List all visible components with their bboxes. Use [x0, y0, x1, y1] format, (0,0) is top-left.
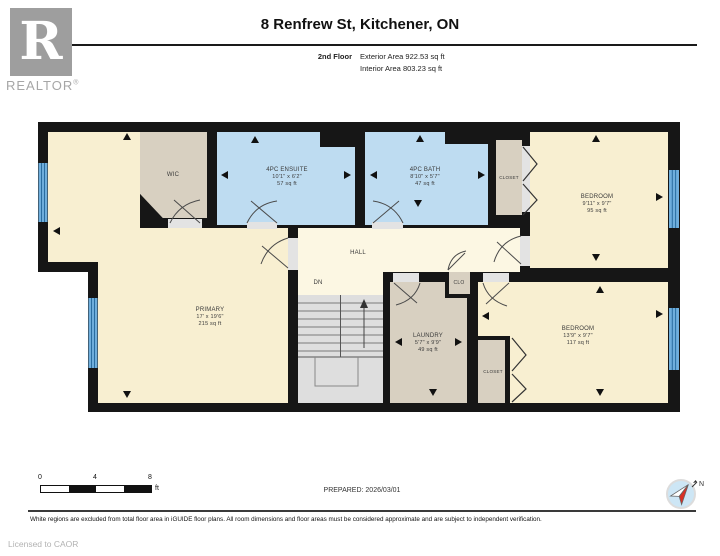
door-gap-bath	[372, 222, 403, 229]
exterior-area-text: Exterior Area 922.53 sq ft	[360, 52, 445, 61]
scale-unit-label: ft	[155, 485, 159, 492]
scale-tick-0: 0	[38, 474, 42, 481]
floor-label: 2nd Floor	[240, 52, 352, 61]
room-label-closet-bottom: CLOSET	[472, 368, 514, 375]
ensuite-dims: 10'1" x 6'2"	[252, 174, 322, 181]
room-primary-upper	[48, 132, 140, 228]
header-divider	[25, 44, 697, 46]
door-gap-primary	[288, 238, 298, 270]
room-label-ensuite: 4PC ENSUITE 10'1" x 6'2" 57 sq ft	[252, 167, 322, 188]
scale-bar	[40, 485, 152, 493]
bedroom2-name: BEDROOM	[543, 326, 613, 333]
bedroom2-dims: 13'9" x 9'7"	[543, 333, 613, 340]
realtor-brand-text: REALTOR	[6, 78, 73, 93]
registered-mark: ®	[73, 80, 79, 87]
room-primary-mid	[48, 228, 288, 262]
bath-wall-notch	[445, 132, 488, 144]
wic-name: WIC	[150, 172, 196, 179]
laundry-area: 49 sq ft	[393, 347, 463, 354]
bedroom1-name: BEDROOM	[562, 194, 632, 201]
bath-dims: 8'10" x 5'7"	[390, 174, 460, 181]
dn-text: DN	[306, 280, 330, 287]
footer-divider	[28, 510, 696, 512]
room-label-wic: WIC	[150, 172, 196, 179]
ensuite-name: 4PC ENSUITE	[252, 167, 322, 174]
room-hall	[298, 228, 520, 272]
room-label-bedroom2: BEDROOM 13'9" x 9'7" 117 sq ft	[543, 326, 613, 347]
door-gap-laundry	[393, 273, 419, 282]
bath-area: 47 sq ft	[390, 181, 460, 188]
compass-n-label: N	[699, 481, 704, 488]
hall-name: HALL	[338, 250, 378, 257]
realtor-logo-letter: R	[19, 11, 62, 73]
ensuite-area: 57 sq ft	[252, 181, 322, 188]
realtor-logo: R	[10, 8, 72, 76]
door-gap-ensuite	[247, 222, 277, 229]
prepared-date: PREPARED: 2026/03/01	[262, 487, 462, 494]
stairs-dn-label: DN	[306, 280, 330, 287]
primary-dims: 17' x 19'6"	[175, 314, 245, 321]
compass-icon: N	[664, 474, 708, 514]
primary-name: PRIMARY	[175, 307, 245, 314]
licensed-text: Licensed to CAOR	[8, 539, 78, 549]
scale-segment	[96, 486, 124, 492]
room-label-clo: CLO	[445, 280, 473, 287]
room-label-bath: 4PC BATH 8'10" x 5'7" 47 sq ft	[390, 167, 460, 188]
door-gap-bedroom2	[483, 273, 509, 282]
room-label-closet-top: CLOSET	[488, 174, 530, 181]
scale-segment	[124, 486, 152, 492]
primary-area: 215 sq ft	[175, 321, 245, 328]
scale-segment	[41, 486, 69, 492]
bath-name: 4PC BATH	[390, 167, 460, 174]
bedroom2-area: 117 sq ft	[543, 340, 613, 347]
closet-top-name: CLOSET	[488, 174, 530, 181]
room-label-laundry: LAUNDRY 5'7" x 9'9" 49 sq ft	[393, 333, 463, 354]
realtor-logo-text: REALTOR®	[6, 78, 96, 93]
closet-bottom-name: CLOSET	[472, 368, 514, 375]
ensuite-wall-notch	[320, 132, 355, 147]
scale-tick-4: 4	[93, 474, 97, 481]
door-gap-bedroom1	[520, 236, 530, 266]
disclaimer-text: White regions are excluded from total fl…	[30, 516, 690, 523]
laundry-dims: 5'7" x 9'9"	[393, 340, 463, 347]
room-primary-lower	[98, 262, 288, 403]
scale-segment	[69, 486, 97, 492]
room-stairwell	[298, 295, 383, 403]
interior-area-text: Interior Area 803.23 sq ft	[360, 64, 442, 73]
laundry-name: LAUNDRY	[393, 333, 463, 340]
room-label-primary: PRIMARY 17' x 19'6" 215 sq ft	[175, 307, 245, 328]
door-gap-wic	[168, 219, 202, 228]
bedroom1-dims: 9'11" x 9'7"	[562, 201, 632, 208]
clo-name: CLO	[445, 280, 473, 287]
room-label-hall: HALL	[338, 250, 378, 257]
page-title: 8 Renfrew St, Kitchener, ON	[0, 16, 720, 33]
room-label-bedroom1: BEDROOM 9'11" x 9'7" 95 sq ft	[562, 194, 632, 215]
bedroom1-area: 95 sq ft	[562, 208, 632, 215]
scale-tick-8: 8	[148, 474, 152, 481]
